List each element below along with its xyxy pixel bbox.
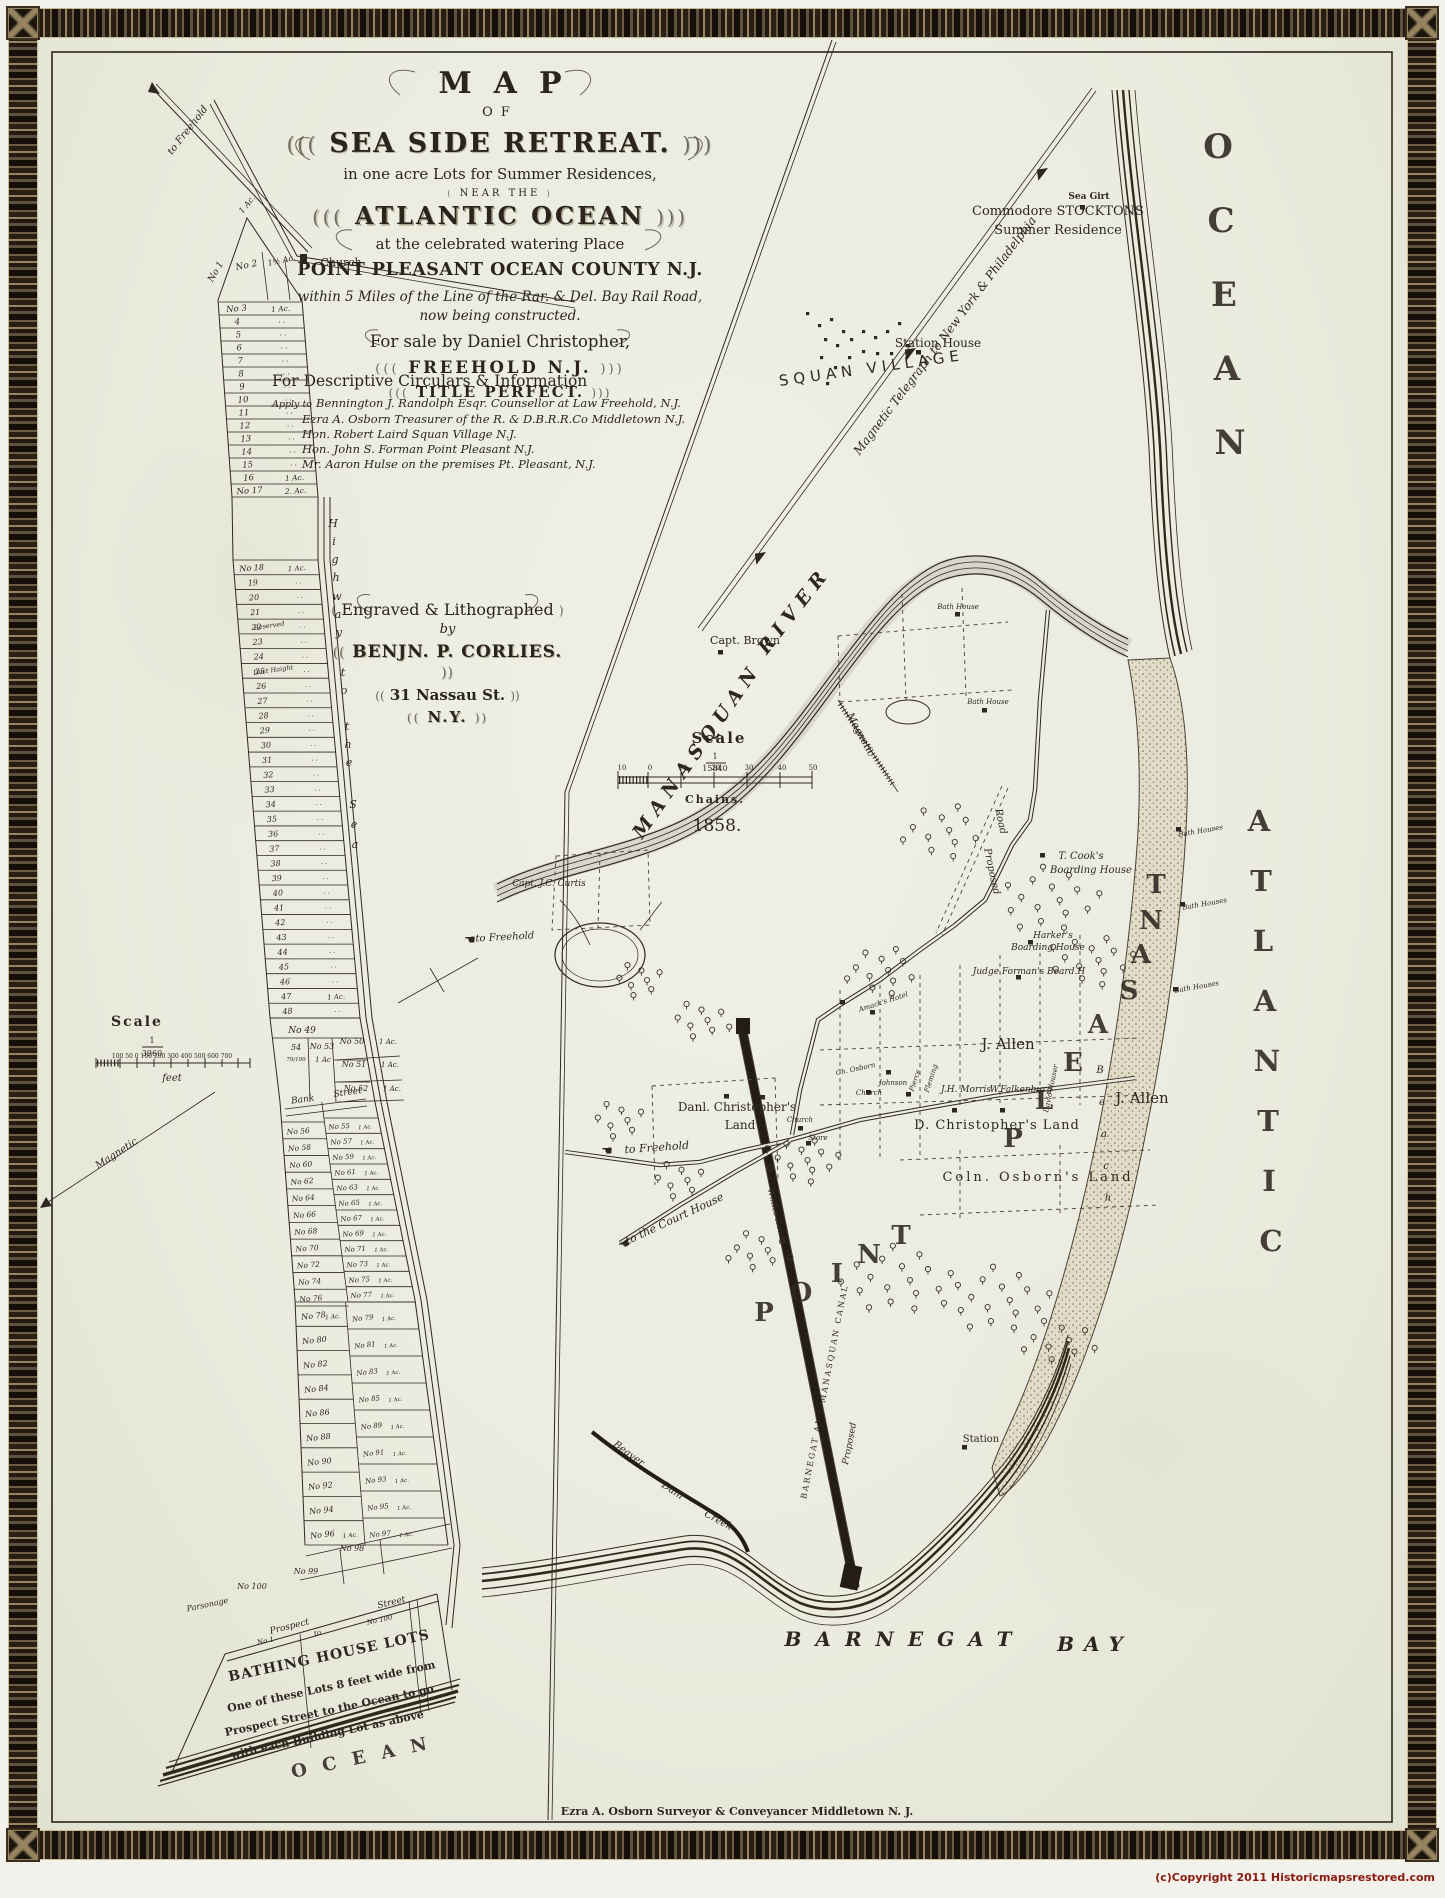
lot-acreage: 1 Ac. <box>288 564 306 573</box>
lot-number: No 82 <box>302 1359 328 1371</box>
map-label: e <box>351 818 358 831</box>
tree-icon <box>885 1285 890 1290</box>
hand-icon: ☚ <box>601 1144 613 1159</box>
lot-number: 19 <box>247 578 258 588</box>
tree-icon <box>747 1253 752 1258</box>
lot-number: 41 <box>273 903 285 913</box>
map-label: Land <box>725 1118 756 1132</box>
lot-number: 21 <box>249 608 261 618</box>
lot-ditto: · · <box>307 712 313 720</box>
tree-icon <box>955 804 960 809</box>
map-label: a <box>1101 1129 1107 1140</box>
canal-label: BARNEGAT AND MANASQUAN CANAL <box>799 1283 850 1499</box>
tree-icon <box>853 965 858 970</box>
apply-to-label: Apply to <box>272 399 312 410</box>
squan-village-label: SQUAN VILLAGE <box>778 346 965 390</box>
tree-icon <box>845 976 850 981</box>
house-icon <box>840 1000 845 1005</box>
village-dot-icon <box>862 330 865 333</box>
lot-number: 44 <box>276 947 288 957</box>
map-label: e <box>346 756 353 769</box>
beach-spit <box>992 658 1187 1496</box>
tree-icon <box>765 1247 770 1252</box>
lot-number: No 61 <box>333 1168 356 1178</box>
lot-ditto: · · <box>303 668 309 676</box>
lot-number: No 80 <box>301 1335 327 1347</box>
tree-icon <box>951 853 956 858</box>
lot-number: 4 <box>233 317 240 327</box>
map-label: No 50 <box>339 1037 365 1046</box>
map-label: T <box>1146 870 1166 900</box>
tree-icon <box>1008 907 1013 912</box>
lot-number: No 79 <box>351 1313 375 1323</box>
tree-icon <box>675 1015 680 1020</box>
lot-acreage: 2. Ac. <box>283 486 306 497</box>
tree-icon <box>1101 968 1106 973</box>
lot-number: 14 <box>241 447 252 458</box>
to-freehold-label: to Freehold <box>624 1139 689 1156</box>
map-label: 1 Ac. <box>237 194 257 215</box>
tree-icon <box>604 1101 609 1106</box>
tree-icon <box>912 1306 917 1311</box>
lot-acreage: 1 Ac. <box>327 992 345 1001</box>
lot-ditto: · · <box>329 949 335 957</box>
map-label: No 98 <box>339 1544 365 1553</box>
lot-ditto: · · <box>322 875 328 883</box>
village-dot-icon <box>886 330 889 333</box>
cooks-boarding-label: T. Cook's <box>1058 851 1103 862</box>
lot-number: 29 <box>258 726 270 736</box>
lot-acreage: 1 Ac. <box>382 1316 397 1323</box>
map-label: c <box>1103 1161 1109 1172</box>
tree-icon <box>1035 1306 1040 1311</box>
tree-icon <box>1075 887 1080 892</box>
tree-icon <box>925 1266 930 1271</box>
tree-icon <box>631 993 636 998</box>
lot-number: No 92 <box>307 1480 333 1492</box>
tree-icon <box>610 1134 615 1139</box>
harkers-boarding-label: Harker's <box>1032 931 1073 941</box>
station-house-label: Station House <box>895 336 981 350</box>
map-label: Store <box>808 1134 827 1142</box>
map-label: L <box>1035 1086 1053 1116</box>
map-label: Summer Residence <box>994 223 1122 238</box>
tree-icon <box>939 815 944 820</box>
lot-number: 13 <box>240 434 251 445</box>
tree-icon <box>1005 882 1010 887</box>
lot-number: 31 <box>262 755 273 765</box>
tree-icon <box>759 1237 764 1242</box>
lot-ditto: · · <box>306 698 312 706</box>
map-label: 40 <box>778 764 787 772</box>
lot-ditto: · · <box>324 890 330 898</box>
tree-icon <box>690 1034 695 1039</box>
village-dot-icon <box>874 336 877 339</box>
map-label: Boarding House <box>1049 865 1132 876</box>
tree-icon <box>969 1294 974 1299</box>
map-label: to Freehold <box>475 930 534 944</box>
tree-icon <box>917 1252 922 1257</box>
tree-icon <box>990 1264 995 1269</box>
map-label: Church <box>856 1089 882 1097</box>
map-label: g <box>331 553 338 566</box>
house-icon <box>760 1095 765 1100</box>
tree-icon <box>1085 906 1090 911</box>
contact-line: Mr. Aaron Hulse on the premises Pt. Plea… <box>302 457 602 472</box>
map-label: A <box>1253 984 1277 1018</box>
engraver-address: (( 31 Nassau St. )) <box>330 686 565 704</box>
frame-top <box>8 8 1437 38</box>
lot-number: No 96 <box>309 1529 335 1541</box>
tree-icon <box>926 834 931 839</box>
d-christophers-land-label: D. Christopher's Land <box>914 1118 1080 1133</box>
lot-acreage: 1 Ac. <box>388 1397 403 1404</box>
danl-christophers-land-label: Danl. Christopher's <box>678 1100 796 1114</box>
map-label: Dam <box>659 1479 686 1502</box>
tree-icon <box>1061 925 1066 930</box>
village-dot-icon <box>850 338 853 341</box>
map-label: T <box>891 1221 911 1251</box>
tree-icon <box>1013 1310 1018 1315</box>
tree-icon <box>1096 957 1101 962</box>
house-icon <box>798 1126 803 1131</box>
map-label: Boarding House <box>1010 943 1085 953</box>
ocean-letters: O <box>1203 127 1233 167</box>
lot-number: No 74 <box>297 1276 322 1287</box>
lot-number: No 75 <box>347 1275 371 1285</box>
map-label: P <box>1003 1124 1023 1154</box>
village-dot-icon <box>818 324 821 327</box>
lot-number: No 67 <box>339 1214 363 1224</box>
map-label: A <box>1087 1010 1109 1040</box>
lot-number: 15 <box>242 460 253 471</box>
tree-icon <box>952 839 957 844</box>
lot-ditto: · · <box>318 831 324 839</box>
lot-ditto: · · <box>297 594 303 602</box>
village-dot-icon <box>806 312 809 315</box>
lot-ditto: · · <box>317 816 323 824</box>
lot-ditto: · · <box>299 624 305 632</box>
tree-icon <box>698 1169 703 1174</box>
map-label: No 2 <box>234 259 259 274</box>
tree-icon <box>805 1157 810 1162</box>
tree-icon <box>1031 1335 1036 1340</box>
map-label: a <box>352 838 359 851</box>
village-dot-icon <box>820 356 823 359</box>
map-label: 100 50 0 100 200 300 400 500 600 700 <box>112 1053 232 1060</box>
lot-acreage: 1 Ac. <box>378 1278 393 1285</box>
village-dot-icon <box>876 352 879 355</box>
lot-ditto: · · <box>302 653 308 661</box>
lot-number: No 59 <box>331 1153 355 1163</box>
tree-icon <box>750 1264 755 1269</box>
lot-number: No 95 <box>366 1502 390 1512</box>
village-dot-icon <box>862 350 865 353</box>
map-label: i <box>332 535 336 548</box>
tree-icon <box>909 975 914 980</box>
map-label: 30 <box>745 764 754 772</box>
lot-acreage: 1 Ac. <box>285 473 305 483</box>
subtitle-watering-place: at the celebrated watering Place <box>280 235 720 253</box>
lot-number: No 85 <box>357 1394 381 1404</box>
map-label: No 100 <box>365 1613 394 1627</box>
lot-number: 11 <box>238 408 249 419</box>
map-label: O <box>790 1278 813 1308</box>
tree-icon <box>699 1007 704 1012</box>
map-label: Ch. Osborn <box>835 1061 876 1077</box>
lot-ditto: · · <box>325 904 331 912</box>
lot-acreage: 1 Ac. <box>368 1201 383 1208</box>
tree-icon <box>907 1277 912 1282</box>
tree-icon <box>963 817 968 822</box>
tree-icon <box>947 827 952 832</box>
map-label: L <box>1253 924 1273 958</box>
tree-icon <box>1007 1297 1012 1302</box>
tree-icon <box>719 1009 724 1014</box>
map-label: Bath House <box>936 603 978 611</box>
map-label: A <box>1130 940 1152 970</box>
lot-number: No 71 <box>343 1245 366 1255</box>
village-dot-icon <box>830 318 833 321</box>
map-label: e <box>1099 1097 1105 1108</box>
point-pleasant-title: POINT PLEASANT OCEAN COUNTY N.J. <box>280 260 720 280</box>
map-label: Proposed <box>841 1421 859 1466</box>
village-dot-icon <box>836 344 839 347</box>
tree-icon <box>929 847 934 852</box>
house-icon <box>955 612 960 617</box>
tree-icon <box>726 1255 731 1260</box>
lot-number: 28 <box>257 711 269 721</box>
village-dot-icon <box>898 322 901 325</box>
lot-acreage: 1 Ac. <box>395 1478 410 1485</box>
map-label: N <box>1254 1044 1281 1078</box>
map-label: BAY <box>1056 1632 1133 1656</box>
map-label: 10 <box>618 764 627 772</box>
tree-icon <box>625 1117 630 1122</box>
map-label: No 1 <box>255 1635 274 1647</box>
lot-number: 33 <box>264 785 275 795</box>
lot-number: No 65 <box>337 1199 361 1209</box>
map-label: H <box>327 517 338 530</box>
atlantic-ocean-title: ((( ATLANTIC OCEAN ))) <box>280 201 720 230</box>
subtitle-constructed: now being constructed. <box>280 308 720 324</box>
lot-acreage: 1 Ac. <box>366 1186 381 1193</box>
lot-number: No 66 <box>292 1210 317 1221</box>
house-icon <box>724 1094 729 1099</box>
lot-ditto: · · <box>326 919 332 927</box>
house-icon <box>718 650 723 655</box>
tree-icon <box>879 956 884 961</box>
map-label: Bath Houses <box>1173 979 1220 995</box>
lot-number: 46 <box>279 977 291 987</box>
engraver-city: (( N.Y. )) <box>330 708 565 726</box>
lot-ditto: · · <box>314 786 320 794</box>
tree-icon <box>819 1149 824 1154</box>
lot-acreage: 1 Ac. <box>358 1124 373 1131</box>
circulars-block: For Descriptive Circulars & Information … <box>272 372 602 472</box>
map-label: N <box>1139 906 1163 936</box>
lot-number: 40 <box>272 888 284 898</box>
map-label: 1 Ac. <box>383 1085 401 1093</box>
tree-icon <box>629 1127 634 1132</box>
lot-number: 23 <box>251 637 263 647</box>
circulars-heading: For Descriptive Circulars & Information <box>272 372 602 390</box>
map-label: 1 Ac <box>315 1056 331 1064</box>
lot-number: No 93 <box>364 1475 388 1485</box>
lot-number: No 73 <box>345 1260 369 1270</box>
map-label: Street <box>333 1086 363 1100</box>
beach-letters: B <box>1095 1065 1103 1076</box>
tree-icon <box>980 1277 985 1282</box>
map-label: h <box>344 738 351 751</box>
lot-number: No 94 <box>308 1505 334 1517</box>
inner-rule <box>52 52 1392 1822</box>
tree-icon <box>1019 894 1024 899</box>
village-dot-icon <box>890 352 893 355</box>
map-label: No 99 <box>293 1567 319 1576</box>
sea-girt-label: Sea Girt <box>1068 192 1110 202</box>
lot-number: No 86 <box>304 1407 330 1419</box>
tree-icon <box>1062 955 1067 960</box>
tree-icon <box>625 962 630 967</box>
tree-icon <box>891 978 896 983</box>
map-label: Church <box>787 1116 813 1124</box>
tree-icon <box>1092 1345 1097 1350</box>
year-label: 1858. <box>693 816 742 836</box>
to-freehold-strip-label: to Freehold <box>166 104 211 157</box>
map-label: E <box>1211 275 1237 315</box>
lot-ditto: · · <box>328 934 334 942</box>
tree-icon <box>689 1187 694 1192</box>
tree-icon <box>955 1282 960 1287</box>
map-label: 0 <box>648 764 652 772</box>
lot-acreage: 1 Ac. <box>370 1216 385 1223</box>
tree-icon <box>1030 877 1035 882</box>
tree-icon <box>1016 1272 1021 1277</box>
beaver-dam-creek-label: Beaver <box>610 1438 647 1469</box>
lot-number: No 69 <box>341 1229 365 1239</box>
lot-acreage: 1 Ac. <box>392 1451 407 1458</box>
map-label: J.H. Morris <box>939 1085 991 1095</box>
lot-number: No 91 <box>362 1448 385 1458</box>
lot-number: 42 <box>274 918 286 928</box>
frame-corner <box>6 1828 40 1862</box>
lot-number: No 3 <box>225 304 247 315</box>
to-court-house-label: to the Court House <box>623 1190 726 1247</box>
lot-number: No 90 <box>306 1456 332 1468</box>
map-label: C <box>1259 1224 1282 1258</box>
engraver-line1: ( Engraved & Lithographed ) <box>330 600 565 619</box>
tree-icon <box>973 835 978 840</box>
tree-icon <box>948 1270 953 1275</box>
map-label: C <box>1207 201 1234 241</box>
tree-icon <box>1011 1325 1016 1330</box>
tree-icon <box>727 1024 732 1029</box>
lot-number: No 68 <box>293 1226 318 1237</box>
lot-ditto: · · <box>320 845 326 853</box>
tree-icon <box>628 982 633 987</box>
map-label: 1 Ac. <box>381 1061 399 1069</box>
lot-acreage: 1 Ac. <box>374 1247 389 1254</box>
lot-ditto: · · <box>310 742 316 750</box>
lot-number: No 77 <box>349 1291 373 1301</box>
tree-icon <box>619 1107 624 1112</box>
proposed-road-label: Road <box>992 807 1008 836</box>
lot-number: 48 <box>281 1007 293 1017</box>
lot-ditto: · · <box>332 978 338 986</box>
village-dot-icon <box>842 330 845 333</box>
lot-number: 36 <box>268 829 279 839</box>
tree-icon <box>688 1023 693 1028</box>
lot-number: 32 <box>263 770 274 780</box>
map-label: Parsonage <box>185 1596 230 1614</box>
lot-acreage: 1 Ac. <box>342 1531 358 1540</box>
map-label: Capt. J.C. Curtis <box>512 879 586 889</box>
lot-acreage: 1 Ac. <box>399 1532 414 1539</box>
lot-ditto: · · <box>309 727 315 735</box>
tree-icon <box>1100 982 1105 987</box>
lot-ditto: · · <box>335 1008 341 1016</box>
map-label: 20 <box>712 764 721 772</box>
lot-number: 20 <box>248 593 260 603</box>
lot-acreage: 1 Ac. <box>325 1313 341 1322</box>
j-allen-label-2: J. Allen <box>1113 1089 1169 1107</box>
map-label: feet <box>161 1073 183 1084</box>
tree-icon <box>1089 946 1094 951</box>
tree-icon <box>608 1123 613 1128</box>
tree-icon <box>988 1318 993 1323</box>
lot-number: 24 <box>252 652 264 662</box>
j-allen-label-1: J. Allen <box>979 1035 1035 1053</box>
lot-number: No 63 <box>335 1183 359 1193</box>
lot-acreage: 1 Ac. <box>390 1424 405 1431</box>
lot-acreage: 1 Ac. <box>372 1232 387 1239</box>
contact-line: Apply toBennington J. Randolph Esqr. Cou… <box>272 396 602 412</box>
lot-number: No 70 <box>294 1243 319 1254</box>
house-icon <box>906 1092 911 1097</box>
tree-icon <box>1111 948 1116 953</box>
tree-icon <box>808 1179 813 1184</box>
lot-ditto: · · <box>316 801 322 809</box>
tree-icon <box>827 1164 832 1169</box>
map-label: 10 <box>679 764 688 772</box>
village-dot-icon <box>824 338 827 341</box>
lot-number: 9 <box>239 382 246 392</box>
house-icon <box>952 1108 957 1113</box>
house-icon <box>870 1010 875 1015</box>
map-label: I <box>1262 1164 1276 1198</box>
lot-ditto: · · <box>330 964 336 972</box>
lot-number: No 57 <box>329 1137 353 1147</box>
house-icon <box>1000 1108 1005 1113</box>
tree-icon <box>788 1163 793 1168</box>
tree-icon <box>1104 936 1109 941</box>
map-label: 1 <box>712 752 717 761</box>
lot-note: Doct Haight <box>252 663 294 677</box>
tree-icon <box>655 1175 660 1180</box>
lot-ditto: · · <box>305 683 311 691</box>
engraver-line2: by <box>330 622 565 637</box>
tree-icon <box>649 987 654 992</box>
deco-right: ))) <box>682 133 713 158</box>
station-label: Station <box>963 1434 1000 1445</box>
tree-icon <box>1017 924 1022 929</box>
scale-left-label: Scale <box>111 1014 163 1030</box>
deco-left: ((( <box>287 133 318 158</box>
tree-icon <box>657 970 662 975</box>
tree-icon <box>913 1290 918 1295</box>
lot-grid: No 31 Ac.4· ·5· ·6· ·7· ·8· ·9· ·10· ·11… <box>218 300 448 1545</box>
